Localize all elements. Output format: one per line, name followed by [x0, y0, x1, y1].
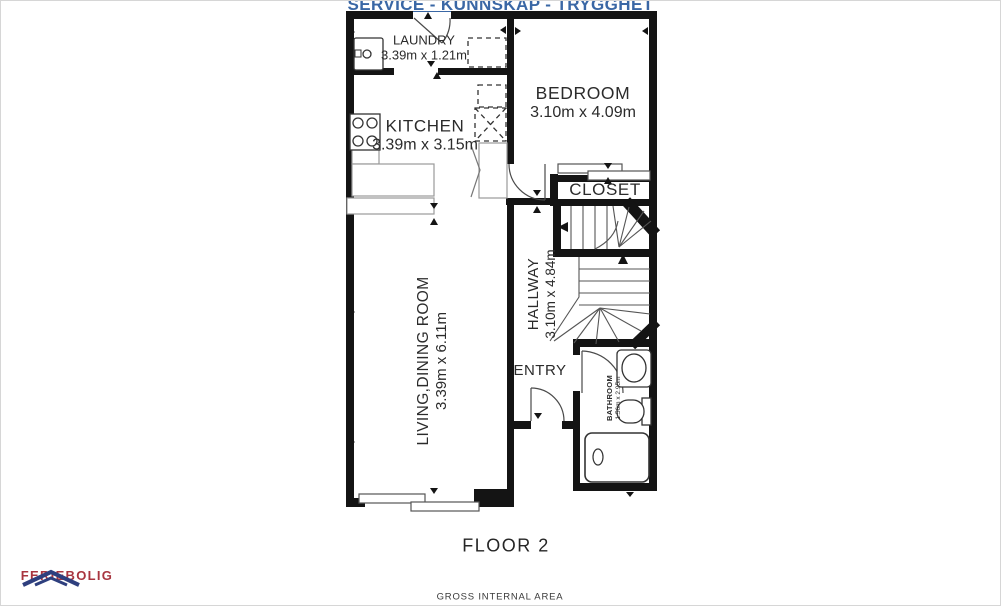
room-label-bathroom: BATHROOM 1.56m x 2.95m [606, 375, 623, 421]
patio-sliding-door [359, 494, 479, 511]
agency-logo: FERIEBOLIG [19, 569, 115, 583]
staircase [550, 206, 651, 344]
shower-tub-icon [585, 433, 649, 482]
room-label-bedroom: BEDROOM 3.10m x 4.09m [530, 83, 636, 123]
room-name: ENTRY [513, 362, 566, 380]
room-dimensions: 3.39m x 3.15m [372, 137, 478, 156]
floorplan-page: SERVICE - KUNNSKAP - TRYGGHET [0, 0, 1001, 606]
washing-machine-icon [354, 38, 383, 70]
room-label-hallway: HALLWAY 3.10m x 4.84m [525, 249, 559, 338]
room-name: HALLWAY [525, 249, 543, 338]
room-label-living-dining: LIVING,DINING ROOM 3.39m x 6.11m [415, 276, 451, 445]
room-dimensions: 3.39m x 6.11m [433, 276, 451, 445]
room-name: CLOSET [569, 180, 641, 200]
room-dimensions: 3.10m x 4.09m [530, 104, 636, 123]
room-label-laundry: LAUNDRY 3.39m x 1.21m [381, 33, 467, 64]
room-name: BATHROOM [606, 375, 615, 421]
room-name: LAUNDRY [381, 33, 467, 48]
room-label-entry: ENTRY [513, 362, 566, 380]
room-dimensions: 3.39m x 1.21m [381, 48, 467, 63]
room-name: BEDROOM [530, 83, 636, 104]
room-label-closet: CLOSET [569, 180, 641, 200]
stairs-lower-flight [550, 257, 650, 344]
room-name: LIVING,DINING ROOM [415, 276, 433, 445]
room-dimensions: 3.10m x 4.84m [543, 249, 559, 338]
room-dimensions: 1.56m x 2.95m [615, 375, 623, 421]
appliance-outline [478, 85, 506, 107]
entry-door [531, 388, 564, 421]
floorplan-drawing [1, 1, 1001, 606]
room-name: KITCHEN [372, 117, 478, 137]
fridge-outline [475, 108, 506, 141]
floor-label: FLOOR 2 [462, 536, 550, 557]
dryer-outline [468, 38, 506, 67]
room-label-kitchen: KITCHEN 3.39m x 3.15m [372, 117, 478, 156]
gross-internal-area-label: GROSS INTERNAL AREA [437, 592, 564, 603]
roof-icon [19, 569, 83, 587]
bedroom-door [509, 164, 545, 200]
